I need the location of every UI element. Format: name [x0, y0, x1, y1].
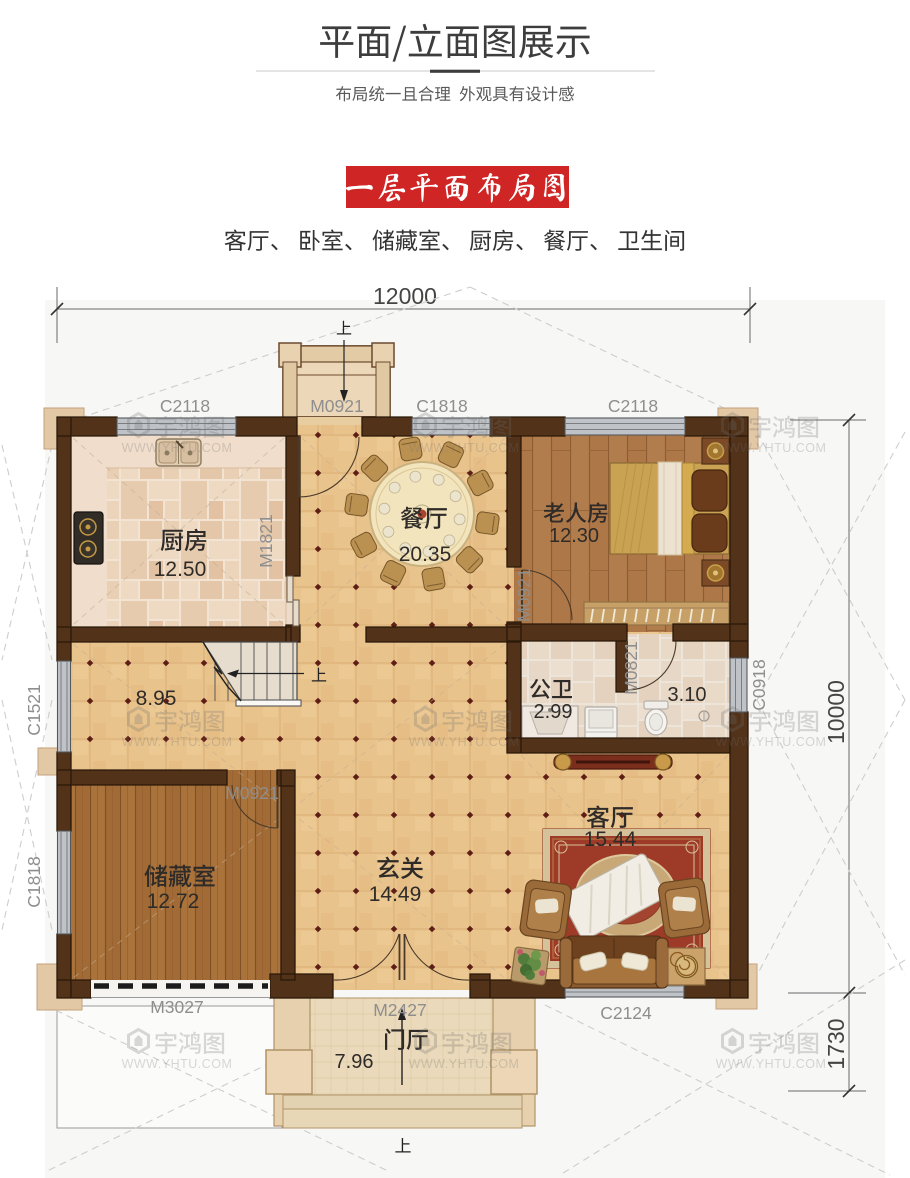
svg-text:20.35: 20.35 — [399, 543, 452, 566]
svg-text:C2118: C2118 — [160, 396, 210, 416]
svg-text:M0921: M0921 — [310, 396, 364, 416]
svg-text:M0921: M0921 — [514, 568, 534, 622]
svg-text:8.95: 8.95 — [136, 687, 177, 710]
svg-text:12.50: 12.50 — [154, 558, 207, 581]
svg-text:WWW.YHTU.COM: WWW.YHTU.COM — [409, 1057, 520, 1071]
svg-text:12.30: 12.30 — [549, 525, 599, 547]
svg-text:WWW.YHTU.COM: WWW.YHTU.COM — [409, 735, 520, 749]
svg-text:M0921: M0921 — [225, 783, 279, 803]
svg-text:WWW.YHTU.COM: WWW.YHTU.COM — [122, 1057, 233, 1071]
svg-text:12000: 12000 — [373, 283, 437, 309]
svg-text:C2124: C2124 — [600, 1003, 652, 1023]
svg-text:3.10: 3.10 — [668, 684, 707, 706]
svg-text:M0821: M0821 — [621, 641, 641, 695]
svg-text:C0918: C0918 — [749, 659, 769, 711]
svg-text:C2118: C2118 — [608, 396, 658, 416]
svg-text:14.49: 14.49 — [369, 883, 422, 906]
svg-text:WWW.YHTU.COM: WWW.YHTU.COM — [122, 441, 233, 455]
svg-text:WWW.YHTU.COM: WWW.YHTU.COM — [716, 441, 827, 455]
svg-text:7.96: 7.96 — [335, 1051, 374, 1073]
svg-text:M3027: M3027 — [150, 997, 204, 1017]
svg-text:WWW.YHTU.COM: WWW.YHTU.COM — [716, 735, 827, 749]
svg-text:15.44: 15.44 — [584, 828, 637, 851]
svg-text:C1521: C1521 — [24, 684, 44, 736]
svg-text:2.99: 2.99 — [534, 701, 573, 723]
svg-text:M1821: M1821 — [256, 514, 276, 568]
svg-text:M2427: M2427 — [373, 1000, 427, 1020]
svg-text:WWW.YHTU.COM: WWW.YHTU.COM — [409, 441, 520, 455]
svg-text:10000: 10000 — [823, 680, 849, 744]
svg-text:WWW.YHTU.COM: WWW.YHTU.COM — [716, 1057, 827, 1071]
svg-text:WWW.YHTU.COM: WWW.YHTU.COM — [122, 735, 233, 749]
svg-text:1730: 1730 — [823, 1018, 849, 1069]
svg-text:C1818: C1818 — [24, 856, 44, 908]
svg-text:12.72: 12.72 — [147, 890, 200, 913]
